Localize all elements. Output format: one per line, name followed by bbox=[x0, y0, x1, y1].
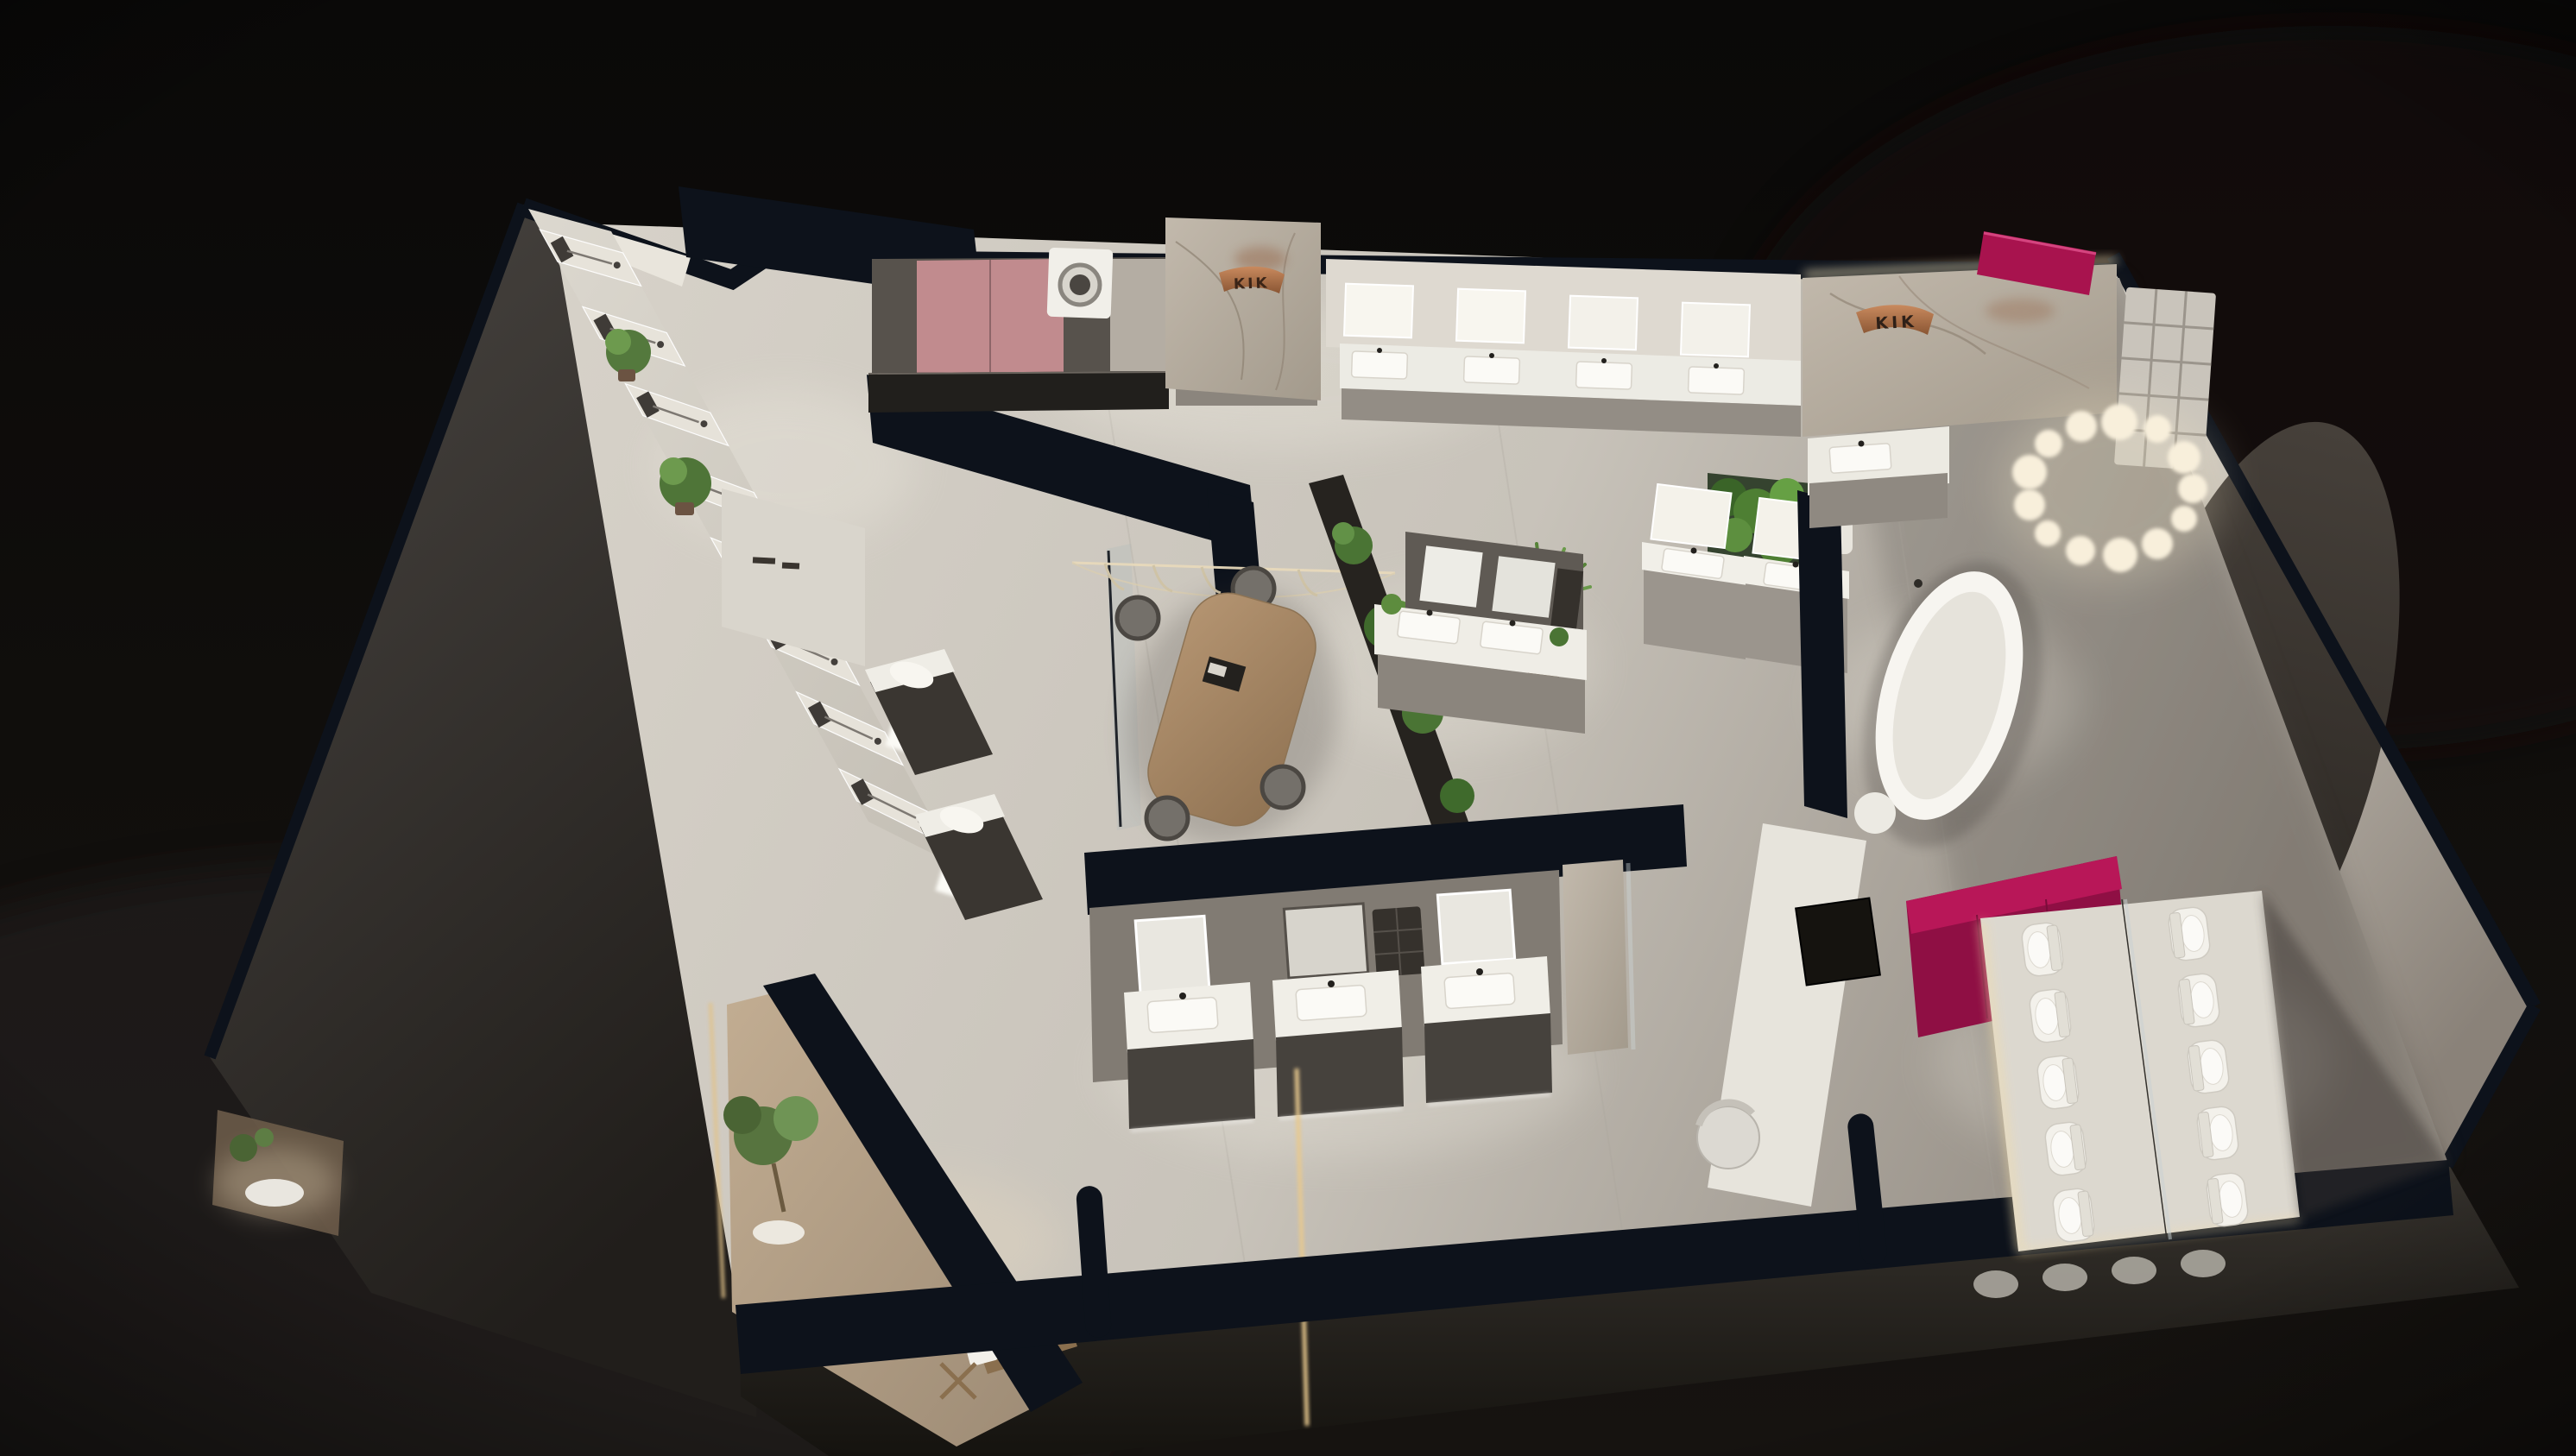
vignette bbox=[0, 0, 2576, 1456]
kik-logo-sign-2: KIK bbox=[1875, 312, 1918, 334]
showroom-render-canvas: KIK KIK bbox=[0, 0, 2576, 1456]
scene-render-group bbox=[0, 0, 2576, 1456]
kik-logo-sign-1: KIK bbox=[1234, 274, 1270, 293]
showroom-render: KIK KIK bbox=[0, 0, 2576, 1456]
